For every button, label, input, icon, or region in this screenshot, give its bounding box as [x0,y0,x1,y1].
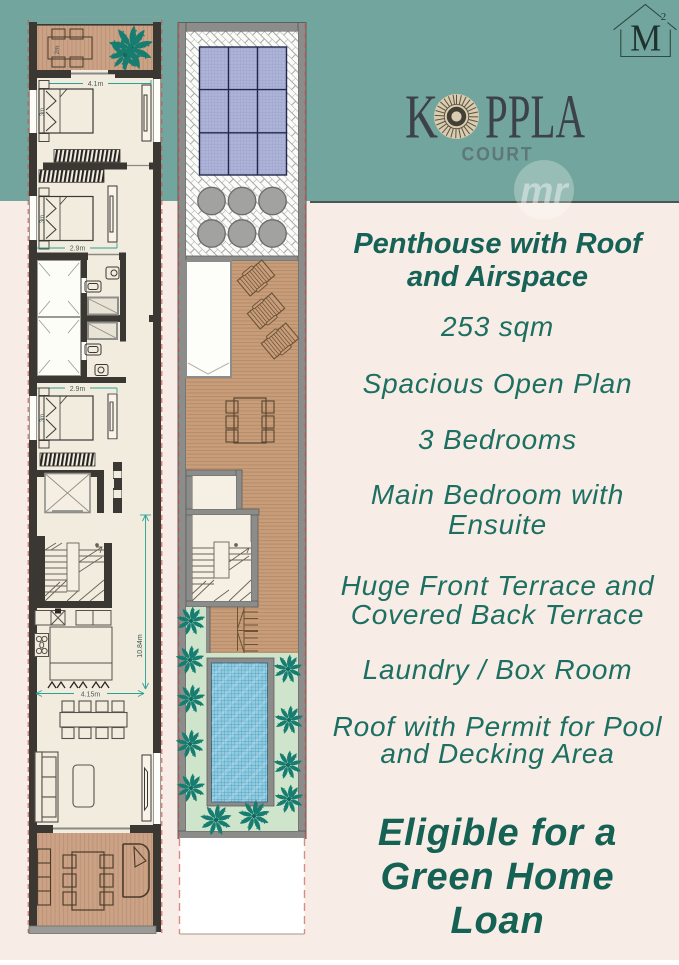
svg-text:2: 2 [661,11,667,23]
svg-text:M: M [630,18,661,60]
svg-text:K: K [405,84,438,152]
svg-text:4.1m: 4.1m [88,81,104,88]
svg-text:2.9m: 2.9m [70,246,86,253]
svg-text:PPLA: PPLA [485,84,585,152]
svg-text:253 sqm: 253 sqm [440,311,554,342]
svg-text:Spacious Open Plan: Spacious Open Plan [363,368,633,399]
svg-text:2.9m: 2.9m [70,386,86,393]
svg-text:Laundry / Box Room: Laundry / Box Room [363,654,633,685]
svg-text:3 Bedrooms: 3 Bedrooms [418,424,577,455]
svg-text:Penthouse with Roof: Penthouse with Roof [353,228,645,260]
svg-text:3m: 3m [40,414,46,422]
svg-text:Green Home: Green Home [381,856,615,898]
svg-text:3m: 3m [40,215,46,223]
svg-text:COURT: COURT [462,145,534,166]
svg-text:mr: mr [520,170,570,211]
svg-text:10.84m: 10.84m [137,634,144,658]
svg-text:3m: 3m [40,108,46,116]
svg-text:and Decking Area: and Decking Area [380,738,614,769]
svg-text:2m: 2m [54,45,61,54]
svg-text:Ensuite: Ensuite [448,509,547,540]
svg-text:and Airspace: and Airspace [407,261,588,293]
svg-text:4.15m: 4.15m [81,692,101,699]
svg-text:Huge Front Terrace and: Huge Front Terrace and [341,570,655,601]
svg-text:Main Bedroom with: Main Bedroom with [371,479,624,510]
svg-text:Loan: Loan [451,900,545,942]
svg-text:Covered Back Terrace: Covered Back Terrace [351,599,645,630]
svg-text:Eligible for a: Eligible for a [378,812,617,854]
